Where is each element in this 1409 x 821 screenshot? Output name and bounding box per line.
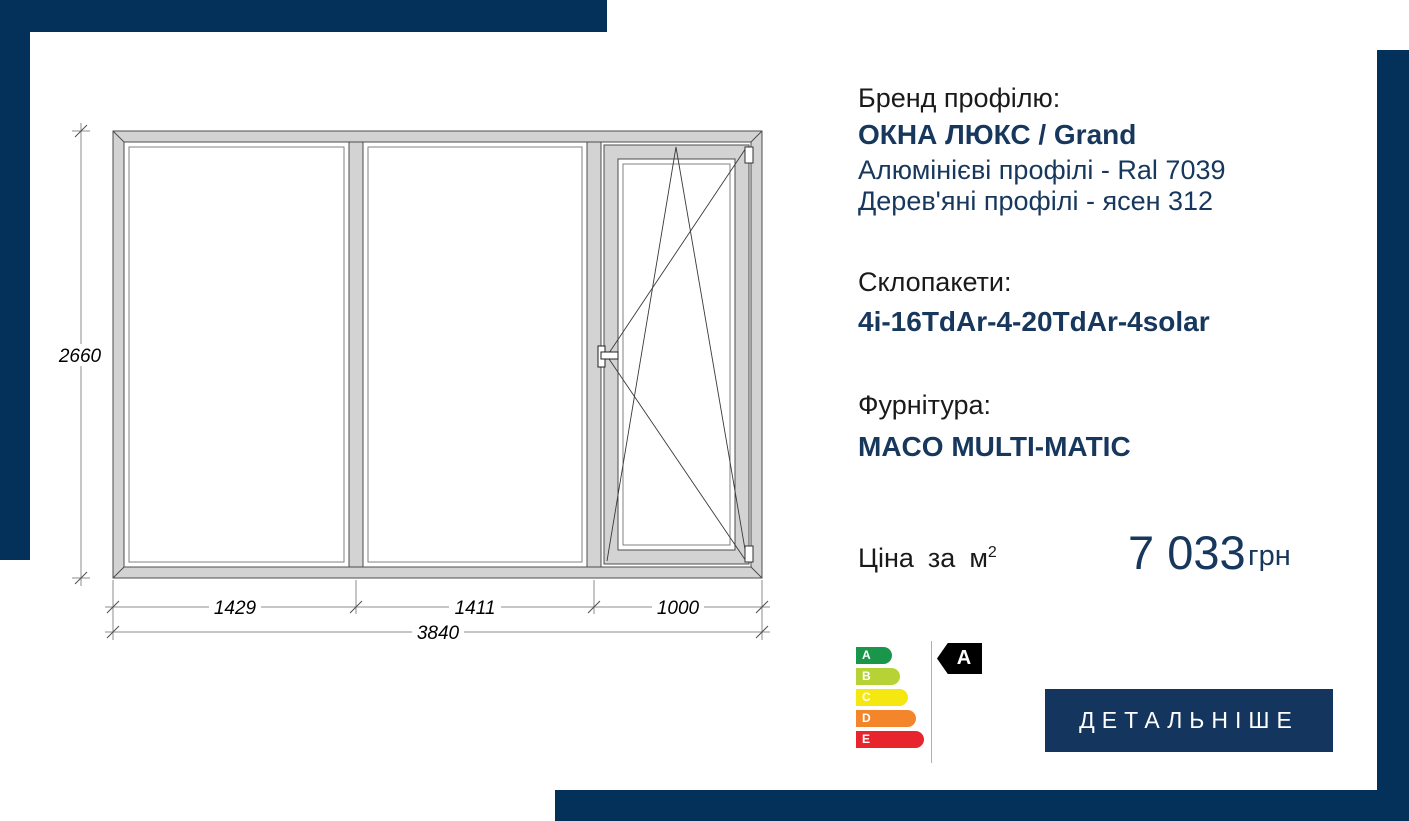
price-label: Ціназам2: [858, 543, 997, 574]
energy-bar-e: E: [856, 731, 924, 748]
hinge-top-icon: [745, 147, 753, 163]
details-button[interactable]: ДЕТАЛЬНІШЕ: [1045, 689, 1333, 752]
energy-bar-b: B: [856, 668, 900, 685]
energy-scale: A B C D E: [856, 647, 924, 752]
product-card: { "product": { "brand_label": "Бренд про…: [0, 0, 1409, 821]
dimension-section3-label: 1000: [657, 598, 700, 619]
sash: [598, 145, 753, 564]
hinge-bottom-icon: [745, 546, 753, 562]
price-value: 7 033: [1128, 525, 1246, 580]
fixed-glass-2: [368, 147, 582, 562]
brand-label: Бренд профілю:: [858, 83, 1060, 114]
dimension-section2-label: 1411: [455, 598, 496, 619]
energy-bar-c: C: [856, 689, 908, 706]
energy-bar-d: D: [856, 710, 916, 727]
hardware-label: Фурнітура:: [858, 390, 991, 421]
glazing-label: Склопакети:: [858, 267, 1012, 298]
window-drawing: 2660 1429 1411 1000 3840: [0, 0, 810, 700]
brand-detail-wood: Дерев'яні профілі - ясен 312: [858, 186, 1213, 217]
price-currency: грн: [1248, 540, 1291, 573]
energy-divider: [931, 641, 932, 763]
hardware-value: MACO MULTI-MATIC: [858, 431, 1131, 463]
energy-rating-badge: A: [937, 643, 982, 674]
decor-right-strip: [1377, 50, 1409, 821]
dimension-total-width-label: 3840: [417, 623, 460, 644]
brand-name: ОКНА ЛЮКС / Grand: [858, 119, 1136, 151]
dimension-height-label: 2660: [58, 346, 102, 367]
brand-detail-aluminium: Алюмінієві профілі - Ral 7039: [858, 155, 1226, 186]
decor-bottom-bar: [555, 790, 1409, 821]
energy-bar-a: A: [856, 647, 892, 664]
dimension-section1-label: 1429: [214, 598, 257, 619]
fixed-glass-1: [129, 147, 344, 562]
glazing-value: 4i-16TdAr-4-20TdAr-4solar: [858, 306, 1210, 338]
mullion-1: [349, 142, 363, 567]
